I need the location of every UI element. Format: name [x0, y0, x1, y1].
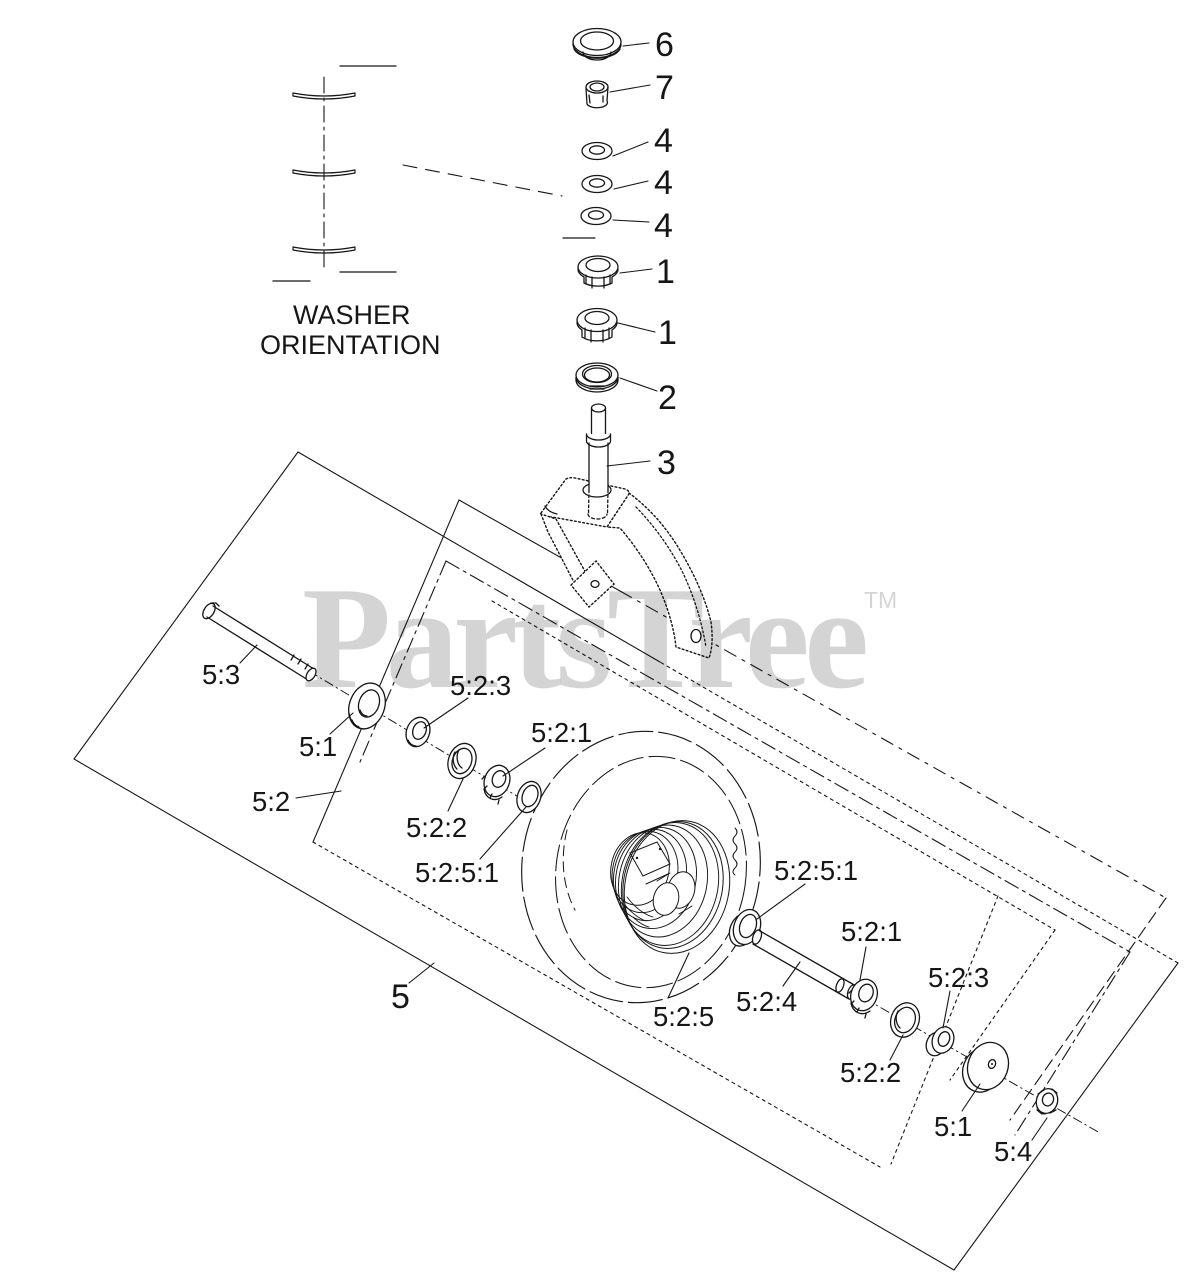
svg-text:5:3: 5:3: [202, 659, 240, 690]
svg-text:5:2:4: 5:2:4: [736, 986, 797, 1017]
svg-text:6: 6: [655, 26, 674, 64]
svg-text:4: 4: [654, 207, 673, 245]
svg-text:5:2:1: 5:2:1: [841, 916, 902, 947]
svg-text:5:2:5: 5:2:5: [653, 1001, 714, 1032]
svg-text:5:2:2: 5:2:2: [840, 1057, 901, 1088]
svg-text:5:2:5:1: 5:2:5:1: [774, 855, 858, 886]
svg-text:1: 1: [658, 314, 677, 352]
svg-text:1: 1: [656, 253, 675, 291]
svg-text:3: 3: [657, 444, 676, 482]
svg-text:5:2:3: 5:2:3: [928, 962, 989, 993]
svg-text:4: 4: [654, 122, 673, 160]
svg-text:TM: TM: [864, 587, 897, 613]
svg-text:4: 4: [654, 164, 673, 202]
svg-text:5:4: 5:4: [994, 1136, 1032, 1167]
svg-text:PartsTree: PartsTree: [302, 557, 869, 719]
svg-text:ORIENTATION: ORIENTATION: [260, 330, 441, 360]
svg-text:5: 5: [391, 978, 410, 1016]
svg-text:5:2:1: 5:2:1: [531, 717, 592, 748]
svg-text:7: 7: [655, 69, 674, 107]
svg-text:5:1: 5:1: [934, 1111, 972, 1142]
svg-text:5:1: 5:1: [299, 731, 337, 762]
svg-text:WASHER: WASHER: [293, 300, 411, 330]
svg-text:5:2:5:1: 5:2:5:1: [415, 857, 499, 888]
svg-text:2: 2: [658, 379, 677, 417]
svg-text:5:2:2: 5:2:2: [406, 812, 467, 843]
svg-text:5:2: 5:2: [252, 786, 290, 817]
